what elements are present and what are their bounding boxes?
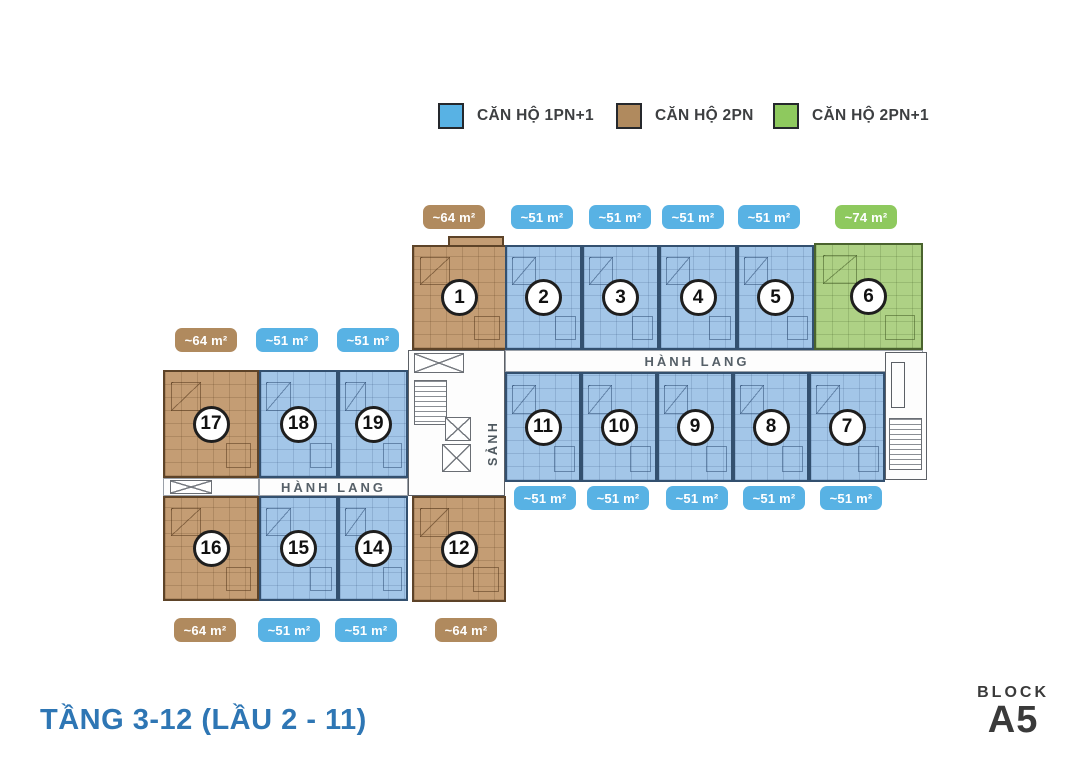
area-badge: ~51 m² [738, 205, 800, 229]
right-shaft [891, 362, 905, 408]
area-badge: ~51 m² [514, 486, 576, 510]
unit-12: 12 [412, 496, 506, 602]
shaft-icon [414, 353, 464, 373]
area-badge: ~51 m² [589, 205, 651, 229]
unit-15: 15 [259, 496, 338, 601]
unit-5: 5 [737, 245, 814, 350]
unit-4: 4 [659, 245, 737, 350]
area-badge: ~64 m² [175, 328, 237, 352]
unit-number: 2 [525, 279, 562, 316]
unit-16: 16 [163, 496, 259, 601]
floor-title: TẦNG 3-12 (LẦU 2 - 11) [40, 704, 367, 737]
unit-number: 19 [355, 406, 392, 443]
unit-number: 9 [677, 409, 714, 446]
unit-8: 8 [733, 372, 809, 482]
block-badge: BLOCK A5 [977, 684, 1049, 738]
area-badge: ~51 m² [743, 486, 805, 510]
right-stairs-icon [889, 418, 922, 470]
floorplan-canvas: CĂN HỘ 1PN+1 CĂN HỘ 2PN CĂN HỘ 2PN+1 HÀN… [0, 0, 1087, 768]
area-badge: ~51 m² [337, 328, 399, 352]
unit-number: 4 [680, 279, 717, 316]
lobby-label: SẢNH [486, 408, 500, 466]
unit-14: 14 [338, 496, 408, 601]
unit-number: 3 [602, 279, 639, 316]
unit-number: 5 [757, 279, 794, 316]
unit-number: 12 [441, 531, 478, 568]
unit-9: 9 [657, 372, 733, 482]
unit-number: 7 [829, 409, 866, 446]
unit-1: 1 [412, 245, 507, 350]
legend-swatch-brown-icon [616, 103, 642, 129]
legend-item-2pn1: CĂN HỘ 2PN+1 [773, 102, 929, 130]
legend-swatch-green-icon [773, 103, 799, 129]
unit-18: 18 [259, 370, 338, 478]
area-badge: ~51 m² [662, 205, 724, 229]
unit-number: 1 [441, 279, 478, 316]
legend-item-2pn: CĂN HỘ 2PN [616, 102, 754, 130]
unit-6: 6 [814, 243, 923, 350]
unit-7: 7 [809, 372, 885, 482]
unit-number: 8 [753, 409, 790, 446]
corridor-right: HÀNH LANG [505, 350, 923, 372]
area-badge: ~64 m² [174, 618, 236, 642]
vent-shaft-icon [170, 480, 212, 494]
legend-item-1pn1: CĂN HỘ 1PN+1 [438, 102, 594, 130]
unit-number: 17 [193, 406, 230, 443]
unit-number: 18 [280, 406, 317, 443]
elevator-1-icon [445, 417, 471, 441]
area-badge: ~51 m² [666, 486, 728, 510]
unit-11: 11 [505, 372, 581, 482]
unit-19: 19 [338, 370, 408, 478]
core-stairs-icon [414, 380, 447, 425]
area-badge: ~64 m² [435, 618, 497, 642]
legend-swatch-blue-icon [438, 103, 464, 129]
legend-label: CĂN HỘ 1PN+1 [477, 107, 594, 125]
area-badge: ~51 m² [335, 618, 397, 642]
legend-label: CĂN HỘ 2PN [655, 107, 754, 125]
unit-number: 10 [601, 409, 638, 446]
corridor-left: HÀNH LANG [259, 478, 408, 496]
area-badge: ~64 m² [423, 205, 485, 229]
unit-number: 6 [850, 278, 887, 315]
legend-label: CĂN HỘ 2PN+1 [812, 107, 929, 125]
unit-2: 2 [505, 245, 582, 350]
unit-number: 14 [355, 530, 392, 567]
unit-17: 17 [163, 370, 259, 478]
area-badge: ~51 m² [511, 205, 573, 229]
area-badge: ~51 m² [587, 486, 649, 510]
unit-3: 3 [582, 245, 659, 350]
area-badge: ~51 m² [256, 328, 318, 352]
block-name: A5 [977, 702, 1049, 738]
unit-number: 15 [280, 530, 317, 567]
unit-number: 16 [193, 530, 230, 567]
area-badge: ~51 m² [820, 486, 882, 510]
elevator-2-icon [442, 444, 471, 472]
area-badge: ~51 m² [258, 618, 320, 642]
unit-number: 11 [525, 409, 562, 446]
unit-10: 10 [581, 372, 657, 482]
area-badge: ~74 m² [835, 205, 897, 229]
